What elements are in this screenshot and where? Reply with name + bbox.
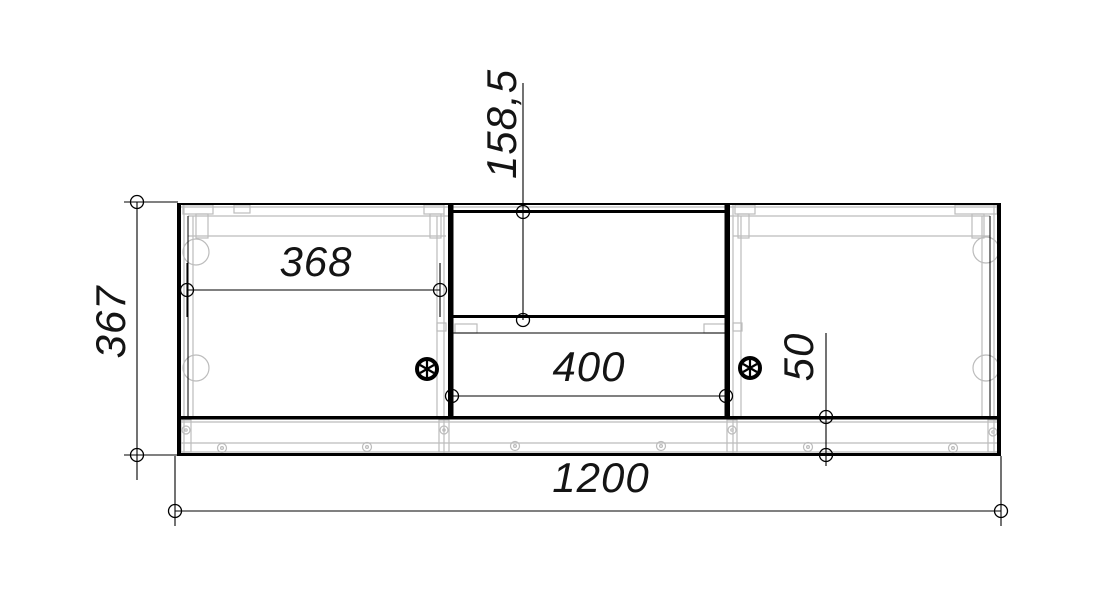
dimension-label-368: 368 [279, 238, 352, 285]
cam-lock-icon [740, 358, 760, 378]
dimension-label-400: 400 [552, 343, 625, 390]
dimension-label-1200: 1200 [552, 454, 649, 501]
cam-lock-icon [417, 359, 437, 379]
technical-drawing-canvas: 367 368 158,5 400 50 1200 [0, 0, 1100, 600]
niche-shelf [448, 315, 730, 318]
dimension-overall-height: 367 [87, 196, 178, 481]
dimension-label-158-5: 158,5 [478, 69, 525, 179]
dimension-overall-width: 1200 [169, 454, 1008, 526]
fastener-screw-marks [182, 426, 997, 453]
dimension-label-367: 367 [87, 285, 134, 359]
dimension-left-section-width: 368 [181, 238, 447, 317]
right-divider-panel [725, 204, 731, 418]
niche-top-panel [448, 210, 730, 213]
cabinet-front-view-drawing: 367 368 158,5 400 50 1200 [0, 0, 1100, 600]
left-divider-panel [448, 204, 454, 418]
top-edge [177, 203, 1001, 205]
dimension-niche-width: 400 [446, 343, 733, 403]
dimension-niche-height: 158,5 [478, 69, 530, 327]
dimension-label-50: 50 [775, 333, 822, 382]
bottom-panel-line [177, 416, 1001, 420]
